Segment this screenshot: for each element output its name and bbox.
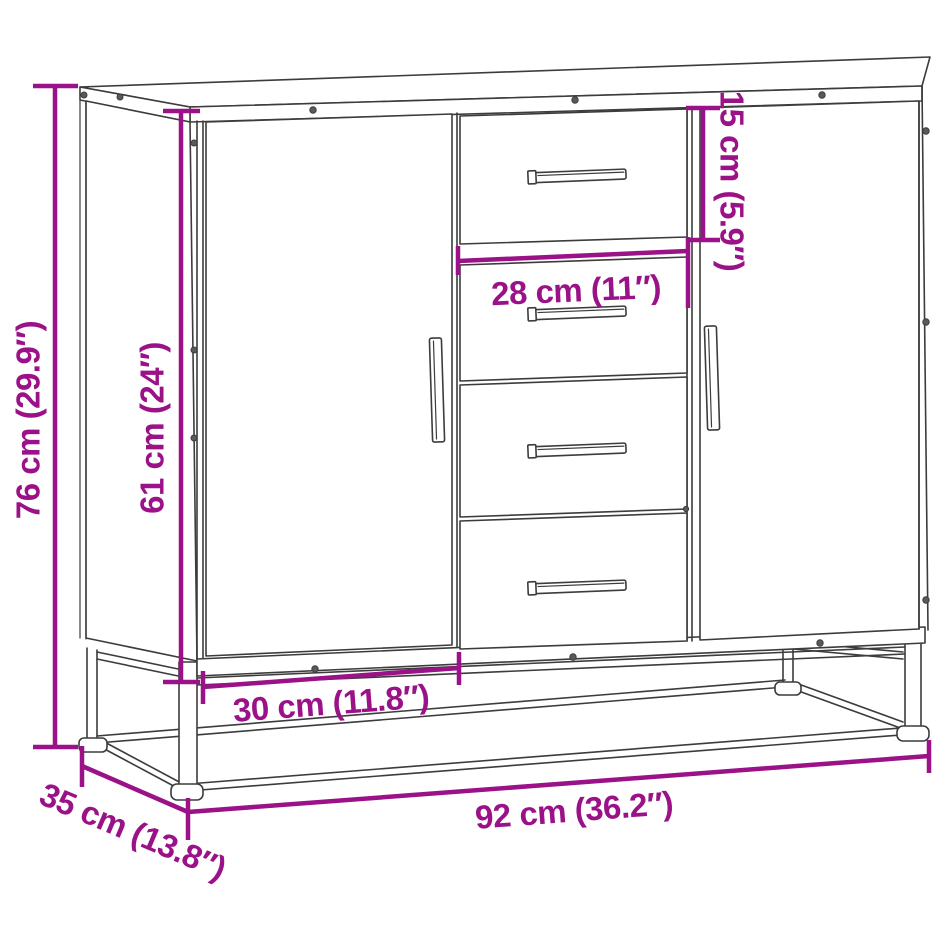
drawer-4-front [460,513,687,649]
foot-back-right [775,682,801,695]
screw-icon [191,435,197,441]
handle-end-cap [528,445,537,458]
cabinet-body [80,57,930,676]
dimension-label-top-drawer-height: 15 cm (5.9″) [714,91,751,271]
dimension-label-overall-width: 92 cm (36.2″) [474,784,674,836]
screw-icon [191,347,197,353]
screw-icon [923,597,929,603]
dimension-top-drawer-height: 15 cm (5.9″) [686,91,751,271]
diagram-canvas: 76 cm (29.9″) 61 cm (24″) 15 cm (5.9″) 2… [0,0,947,947]
handle-end-cap [528,171,537,184]
dimension-label-overall-height: 76 cm (29.9″) [10,321,47,519]
left-door-handle [429,338,444,442]
base-right-side-bottom-rail [793,682,903,729]
right-door-handle [704,326,719,430]
screw-icon [570,654,576,660]
screw-icon [683,506,688,511]
left-back-edge [80,100,86,639]
screw-icon [923,128,929,134]
screw-icon [817,640,823,646]
foot-front-left [171,784,203,800]
base-front-bottom-rail [188,727,913,791]
handle-bar [704,326,719,430]
base-front-right-leg [905,633,921,728]
screw-icon [819,92,825,98]
base-left-side-bottom-rail [97,738,183,791]
handle-bar [429,338,444,442]
product-dimension-diagram: 76 cm (29.9″) 61 cm (24″) 15 cm (5.9″) 2… [0,0,947,947]
dimension-depth: 35 cm (13.8″) [35,746,232,887]
screw-icon [310,107,316,113]
screw-icon [117,94,123,100]
screw-icon [81,92,87,98]
dimension-label-door-width: 30 cm (11.8″) [232,677,431,729]
base-back-left-leg [87,648,97,740]
dimension-overall-height: 76 cm (29.9″) [10,86,79,747]
front-left-stile [197,121,203,661]
base-back-bottom-rail [97,680,785,743]
dimension-drawer-width: 28 cm (11″) [458,237,688,312]
handle-end-cap [528,582,537,595]
left-door [206,114,452,656]
dimension-label-drawer-width: 28 cm (11″) [490,268,661,312]
screw-icon [923,319,929,325]
dimension-label-body-height: 61 cm (24″) [134,342,171,514]
foot-front-right [897,726,929,741]
screw-icon [572,97,578,103]
screw-icon [191,140,197,146]
screw-icon [312,666,318,672]
right-stile [919,86,928,630]
